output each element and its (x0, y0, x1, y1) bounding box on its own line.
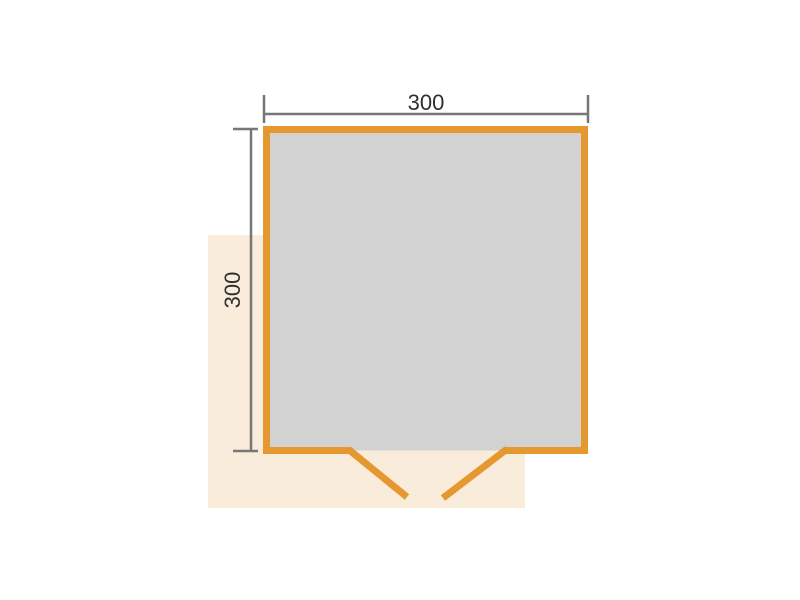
width-dimension: 300 (264, 90, 588, 123)
width-dimension-label: 300 (408, 90, 445, 115)
floor-area (267, 130, 585, 451)
floor-plan-diagram: 300 300 (0, 0, 800, 600)
depth-dimension-label: 300 (220, 272, 245, 309)
shed-floor-plan-page: 300 300 (0, 0, 800, 600)
